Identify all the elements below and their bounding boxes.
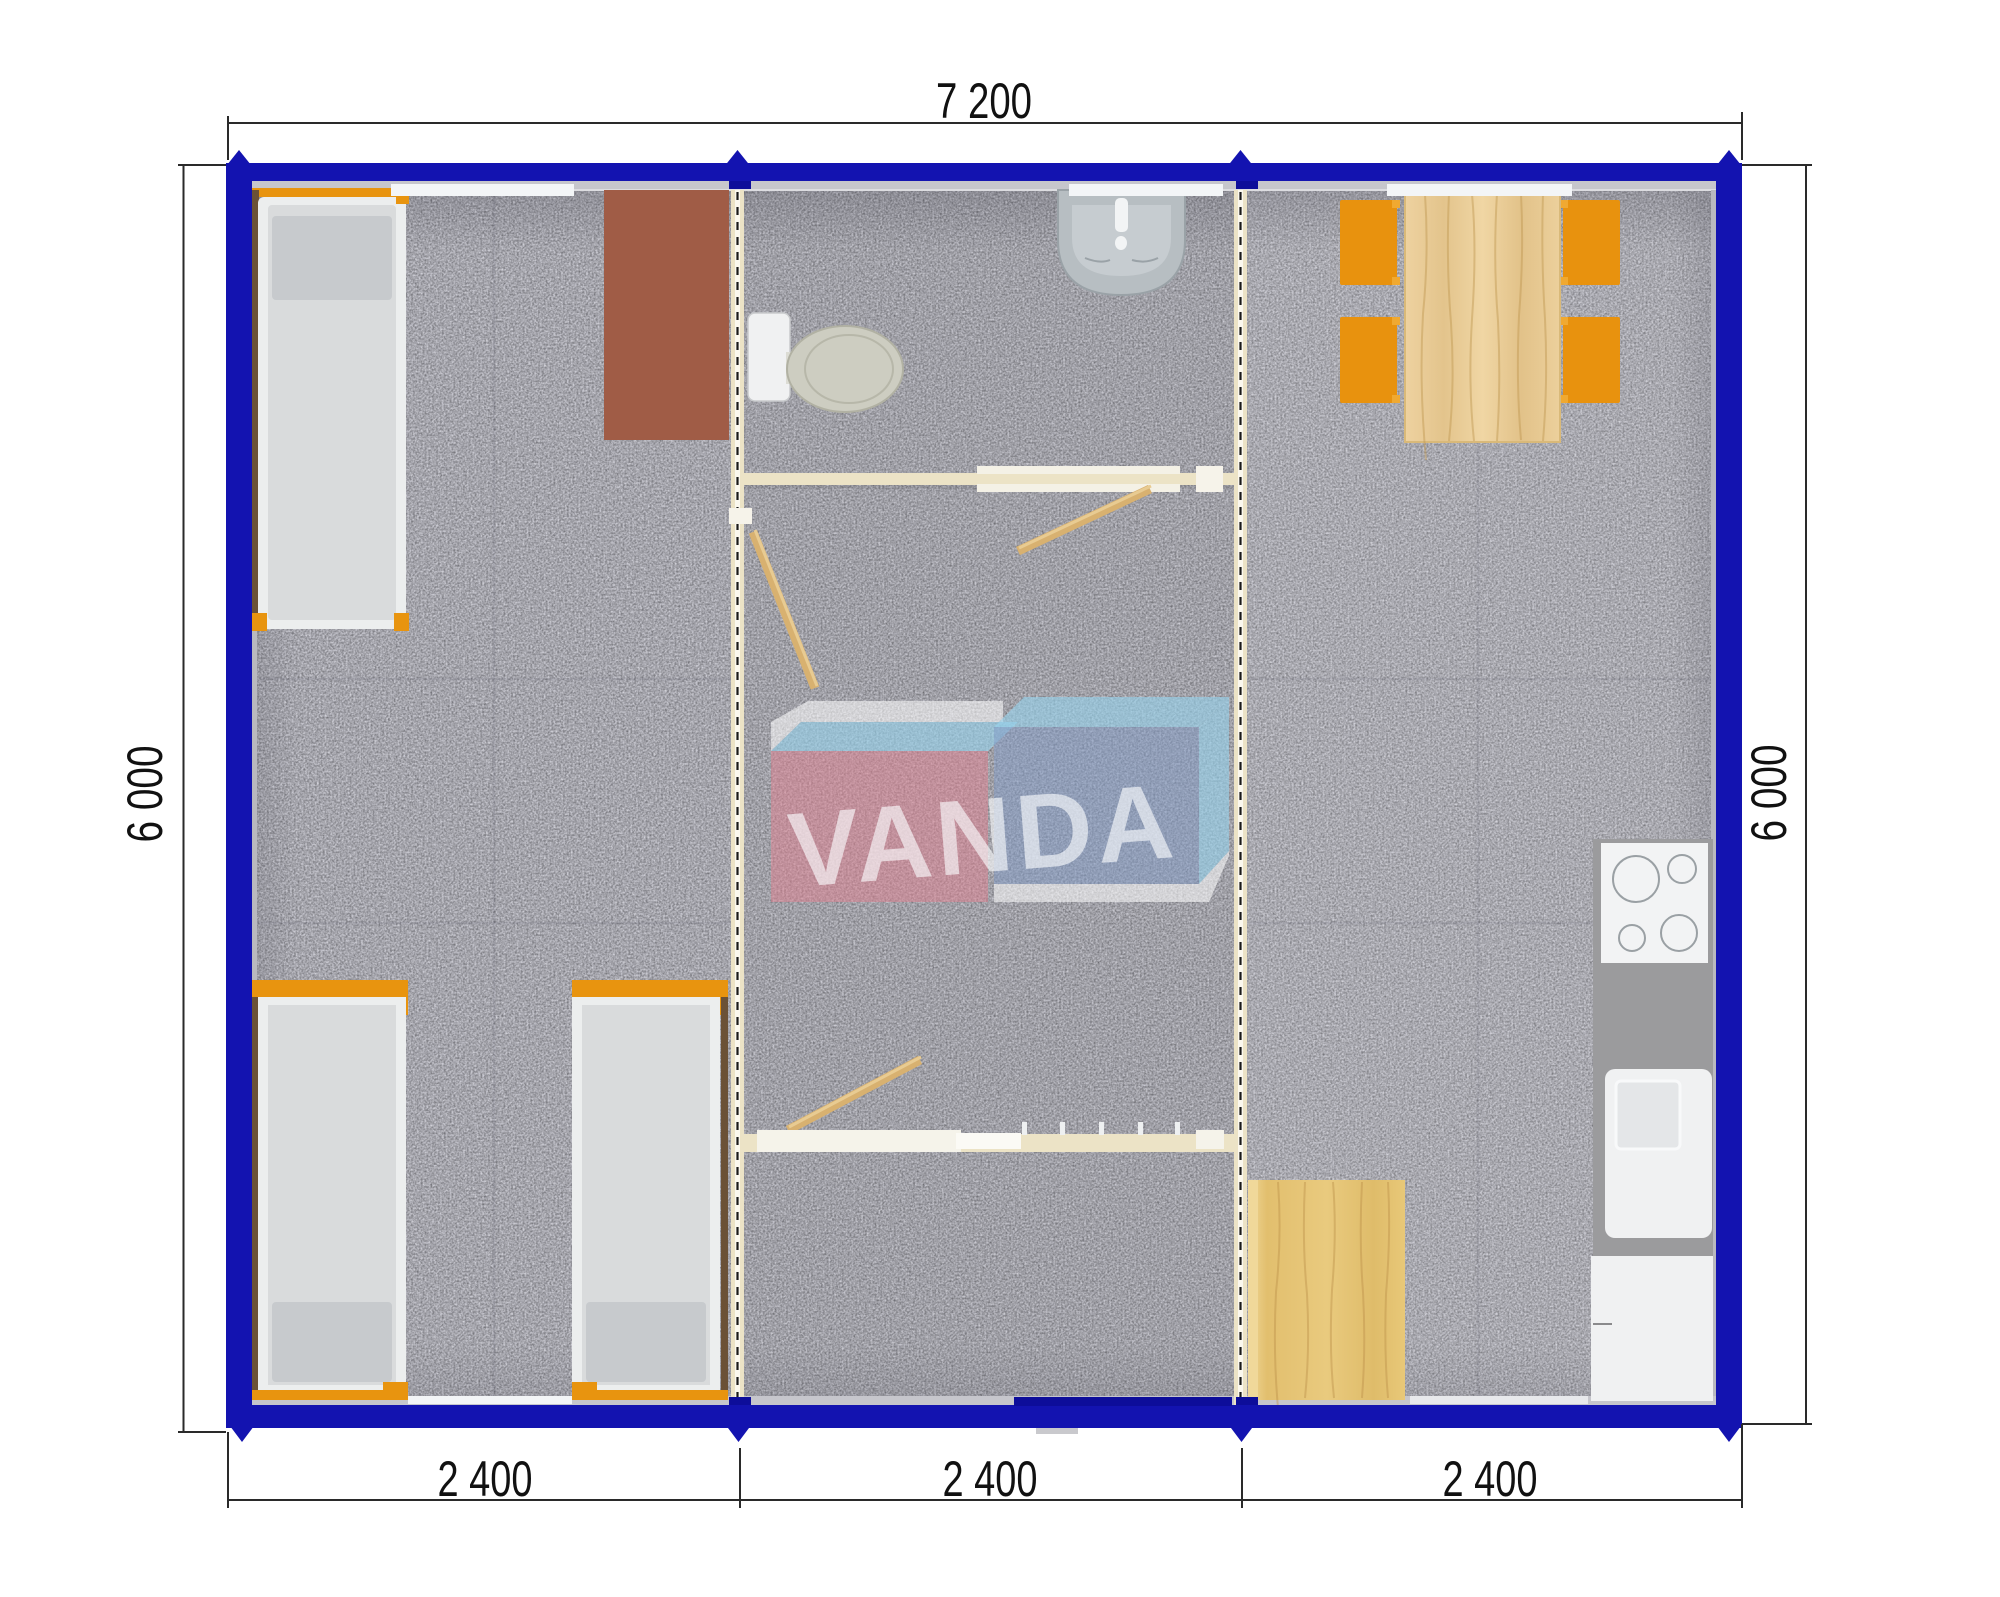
svg-text:6 000: 6 000	[1741, 745, 1797, 842]
svg-text:7 200: 7 200	[936, 73, 1032, 129]
svg-text:2 400: 2 400	[943, 1451, 1038, 1507]
svg-text:2 400: 2 400	[1443, 1451, 1538, 1507]
svg-text:6 000: 6 000	[117, 746, 173, 843]
svg-text:2 400: 2 400	[438, 1451, 533, 1507]
